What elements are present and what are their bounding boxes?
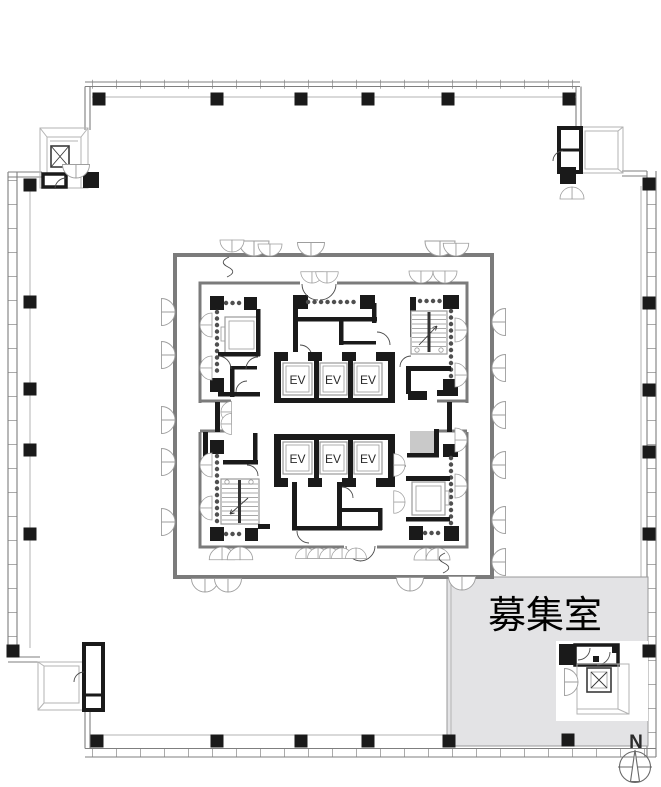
core-block-bottom-right <box>396 429 459 541</box>
shaded-shaft <box>410 431 435 455</box>
north-label: N <box>629 732 643 753</box>
elevator-label: EV <box>360 373 376 387</box>
squiggle-mark <box>223 257 233 277</box>
elevator-label: EV <box>360 452 376 466</box>
corner-structure-bottom-right <box>556 641 648 721</box>
core-interior: EV EV EV EV EV EV <box>203 284 459 561</box>
core-block-top-left <box>210 296 261 397</box>
elevator-bank-bottom: EV EV EV <box>274 434 395 487</box>
corner-structure-bottom-left <box>38 644 103 710</box>
elevator-label: EV <box>325 373 341 387</box>
vacant-room-label: 募集室 <box>488 595 602 637</box>
staircase-upper <box>411 311 447 354</box>
elevator-label: EV <box>289 452 305 466</box>
corner-structure-top-right <box>553 127 623 199</box>
elevator-label: EV <box>325 452 341 466</box>
corner-structure-top-left <box>40 128 99 189</box>
core-block-bottom-left <box>203 432 259 541</box>
floor-plan-canvas: 募集室 <box>0 0 661 787</box>
machine-room-box <box>225 317 258 353</box>
core-block-top-right <box>400 295 459 400</box>
core-room-bottom-middle <box>258 482 383 543</box>
elevator-label: EV <box>289 373 305 387</box>
machine-room-box <box>412 482 445 515</box>
staircase-lower <box>221 479 259 524</box>
elevator-bank-top: EV EV EV <box>274 352 395 403</box>
compass-needle <box>631 750 640 782</box>
core-room-top-middle <box>293 295 390 358</box>
